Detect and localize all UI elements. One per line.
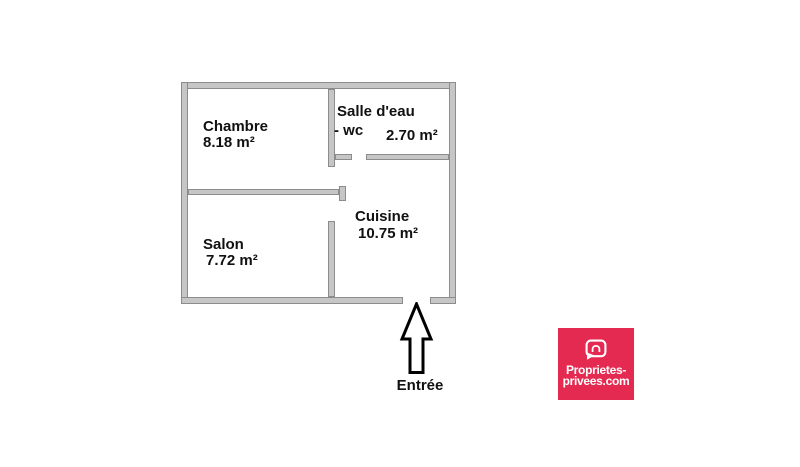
wall-outer-bottom-left-of-entrance	[181, 297, 403, 304]
floorplan-canvas: Chambre 8.18 m² Salle d'eau - wc 2.70 m²…	[0, 0, 800, 467]
room-area-chambre: 8.18 m²	[203, 135, 255, 150]
wall-chambre-salon	[188, 189, 339, 195]
wall-outer-left	[181, 82, 188, 304]
room-name-salon: Salon	[203, 237, 244, 252]
room-area-cuisine: 10.75 m²	[358, 226, 418, 241]
room-area-salledeau: 2.70 m²	[386, 128, 438, 143]
wall-salledeau-bottom-left	[335, 154, 352, 160]
room-name-salledeau: Salle d'eau	[337, 104, 415, 119]
wall-salon-cuisine	[328, 221, 335, 297]
entrance-up-arrow-icon	[399, 302, 435, 376]
wall-outer-top	[181, 82, 456, 89]
room-name-chambre: Chambre	[203, 119, 268, 134]
speech-bubble-house-icon	[584, 338, 608, 362]
logo-text: Proprietes- privees.com	[563, 365, 630, 387]
wall-salledeau-bottom-right	[366, 154, 449, 160]
proprietes-privees-logo: Proprietes- privees.com	[558, 328, 634, 400]
wall-chambre-salon-endcap	[339, 186, 346, 201]
wall-outer-right	[449, 82, 456, 304]
entrance-label: Entrée	[385, 378, 455, 393]
room-sub-salledeau: - wc	[334, 123, 363, 138]
room-name-cuisine: Cuisine	[355, 209, 409, 224]
logo-text-line2: privees.com	[563, 374, 630, 388]
room-area-salon: 7.72 m²	[206, 253, 258, 268]
